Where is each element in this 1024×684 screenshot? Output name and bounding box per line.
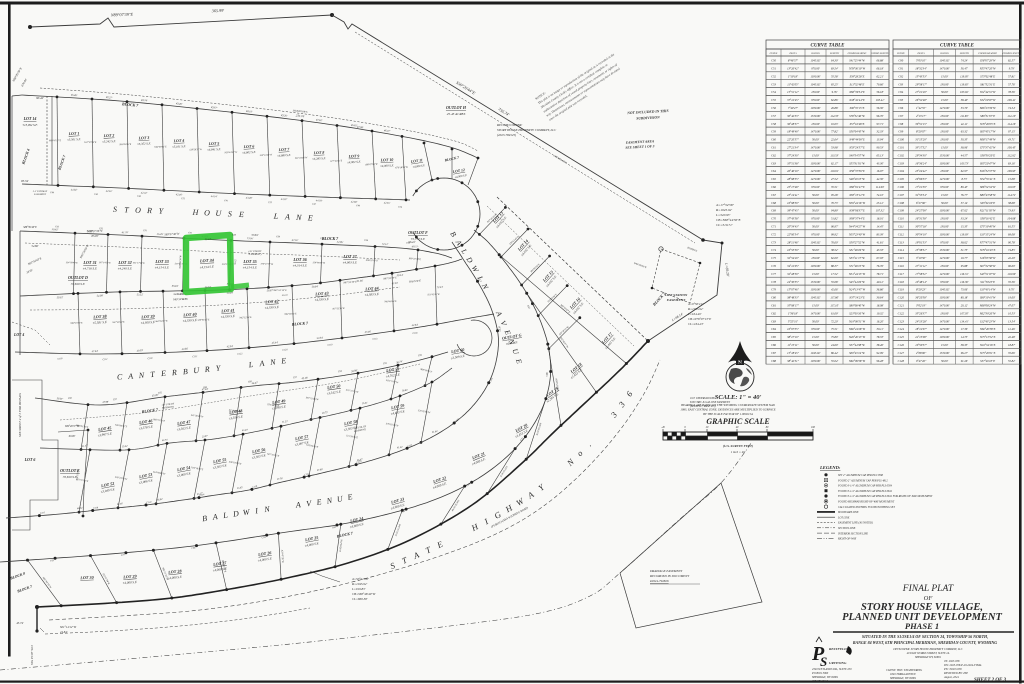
svg-text:LOT 41: LOT 41 [220, 308, 235, 314]
svg-text:83.39': 83.39' [876, 232, 884, 236]
svg-text:URVEYING: URVEYING [829, 661, 847, 665]
svg-text:C124: C124 [898, 327, 905, 331]
svg-text:S48°20'13"W: S48°20'13"W [849, 177, 865, 181]
svg-text:42.84': 42.84' [412, 323, 419, 327]
svg-text:C100: C100 [898, 138, 905, 142]
svg-text:CHORD LENGTH: CHORD LENGTH [871, 52, 889, 55]
svg-text:50.00': 50.00' [812, 319, 820, 323]
svg-text:C91: C91 [188, 232, 192, 234]
svg-text:C50: C50 [771, 59, 776, 63]
svg-text:C107: C107 [898, 193, 905, 197]
svg-text:130.00': 130.00' [940, 225, 949, 229]
svg-text:59.14': 59.14' [397, 274, 404, 277]
svg-text:N75°13'52"E: N75°13'52"E [979, 335, 996, 339]
svg-text:74.54': 74.54' [1008, 106, 1016, 110]
svg-text:C58: C58 [771, 122, 776, 126]
svg-text:14.45': 14.45' [876, 225, 884, 229]
svg-text:63.32': 63.32' [961, 130, 969, 134]
svg-text:N62°52'04"E: N62°52'04"E [238, 316, 252, 319]
svg-text:31°15'29": 31°15'29" [915, 138, 927, 142]
svg-text:1470.00': 1470.00' [939, 272, 949, 276]
svg-text:S32°20'07"W: S32°20'07"W [980, 98, 996, 102]
svg-text:18.01': 18.01' [876, 217, 884, 221]
svg-text:S89°31'07"E: S89°31'07"E [980, 114, 995, 118]
svg-text:1045.92': 1045.92' [939, 288, 949, 292]
svg-text:O: O [135, 206, 141, 215]
svg-text:EASEMENT: EASEMENT [33, 193, 47, 196]
svg-text:C84: C84 [771, 327, 776, 331]
svg-text:42.11': 42.11' [961, 122, 968, 126]
svg-text:15°18'45": 15°18'45" [787, 351, 799, 355]
svg-text:FOUND 3-1/4" ALUMINUM CAP PER: FOUND 3-1/4" ALUMINUM CAP PER PLS 6504 [837, 485, 893, 488]
svg-text:96.97': 96.97' [831, 225, 839, 229]
svg-text:8.73': 8.73' [961, 177, 967, 181]
svg-text:CURVE TABLE: CURVE TABLE [940, 44, 975, 49]
svg-text:C53: C53 [771, 82, 776, 86]
svg-text:CURVE: CURVE [897, 52, 905, 55]
svg-text:C64: C64 [771, 169, 776, 173]
svg-text:C62: C62 [771, 153, 776, 157]
svg-text:85.34': 85.34' [21, 179, 29, 183]
svg-text:37°24'30": 37°24'30" [787, 153, 799, 157]
svg-text:C55: C55 [771, 98, 776, 102]
svg-text:67.03': 67.03' [876, 256, 884, 260]
svg-text:C92: C92 [898, 74, 903, 78]
svg-text:S43°51'07"W: S43°51'07"W [980, 272, 996, 276]
svg-text:28°08'55": 28°08'55" [787, 177, 799, 181]
svg-text:130.00': 130.00' [811, 122, 820, 126]
svg-text:DRAINAGE EASEMENT: DRAINAGE EASEMENT [649, 569, 683, 573]
svg-text:1°42'55": 1°42'55" [916, 106, 927, 110]
svg-text:N47°48'10"E: N47°48'10"E [111, 321, 125, 324]
svg-text:S57°49'23"E: S57°49'23"E [980, 359, 995, 363]
svg-text:S30°03'15"E: S30°03'15"E [198, 318, 211, 321]
svg-text:C61: C61 [771, 146, 776, 150]
svg-text:38.96': 38.96' [961, 146, 969, 150]
svg-text:56.18': 56.18' [876, 90, 884, 94]
svg-text:C91: C91 [143, 230, 147, 232]
svg-text:S45°44'29"W: S45°44'29"W [849, 280, 865, 284]
svg-text:39.11': 39.11' [877, 327, 884, 331]
svg-text:EASEMENT: EASEMENT [666, 298, 686, 302]
svg-text:C94: C94 [898, 90, 903, 94]
svg-text:C117: C117 [898, 272, 905, 276]
svg-text:C120: C120 [898, 296, 905, 300]
svg-text:50.00': 50.00' [941, 90, 949, 94]
svg-text:C54: C54 [771, 90, 776, 94]
svg-text:13.54': 13.54' [1008, 319, 1016, 323]
svg-text:50.00': 50.00' [812, 209, 820, 213]
svg-text:C123: C123 [898, 319, 905, 323]
svg-text:55.82': 55.82' [1008, 359, 1016, 363]
svg-text:C73: C73 [771, 240, 776, 244]
svg-text:17°58'52": 17°58'52" [915, 272, 927, 276]
svg-text:S71°48'15"W: S71°48'15"W [849, 264, 865, 268]
svg-text:SITUATED IN THE S1/2SE1/4 OF S: SITUATED IN THE S1/2SE1/4 OF SECTION 24,… [862, 634, 988, 639]
svg-text:64.30': 64.30' [831, 59, 839, 63]
svg-text:74.10': 74.10' [876, 193, 884, 197]
svg-text:1030.00': 1030.00' [810, 106, 820, 110]
svg-text:E: E [307, 213, 313, 222]
svg-text:S75°37'42"W: S75°37'42"W [980, 146, 996, 150]
svg-text:N08°17'49"W: N08°17'49"W [979, 138, 997, 142]
svg-text:96.70': 96.70' [876, 114, 884, 118]
svg-text:970.00': 970.00' [811, 327, 820, 331]
svg-text:49.39': 49.39' [137, 349, 144, 353]
svg-text:FINAL PLAT: FINAL PLAT [902, 584, 954, 594]
svg-text:LOT 3: LOT 3 [137, 135, 149, 141]
svg-text:(2023-784525): (2023-784525) [497, 133, 516, 137]
svg-text:16°31'58": 16°31'58" [915, 217, 927, 221]
svg-text:1530.00': 1530.00' [810, 280, 820, 284]
svg-text:32°54'20": 32°54'20" [787, 256, 799, 260]
svg-text:95.28': 95.28' [831, 193, 839, 197]
svg-text:74.85': 74.85' [1008, 248, 1016, 252]
svg-text:LOT 7: LOT 7 [277, 146, 290, 152]
svg-text:1030.00': 1030.00' [939, 335, 949, 339]
svg-text:S28°08'32"W: S28°08'32"W [313, 261, 327, 265]
svg-text:N60°39'54"E: N60°39'54"E [848, 90, 865, 94]
svg-text:15.00': 15.00' [941, 74, 949, 78]
svg-text:FOUND 3-1/4" ALUMINUM CAP PER: FOUND 3-1/4" ALUMINUM CAP PER PLS 6812 F… [837, 495, 933, 498]
svg-text:74.24': 74.24' [961, 59, 969, 63]
svg-text:N39°06'37"E: N39°06'37"E [848, 209, 865, 213]
svg-text:2340 WETLANDS DR., SUITE 100: 2340 WETLANDS DR., SUITE 100 [812, 668, 852, 671]
svg-text:C116: C116 [898, 264, 905, 268]
svg-text:66.18': 66.18' [876, 67, 884, 71]
svg-text:S11°52'48"E: S11°52'48"E [850, 82, 865, 86]
svg-text:REVIEWED BY: ZSP: REVIEWED BY: ZSP [943, 672, 968, 675]
svg-text:22°00'54": 22°00'54" [787, 232, 799, 236]
svg-text:RECORDED IN DOCUMENT: RECORDED IN DOCUMENT [649, 574, 689, 578]
svg-text:CHORD BEARING: CHORD BEARING [848, 52, 867, 55]
svg-text:1470.00': 1470.00' [939, 67, 949, 71]
svg-text:970.00': 970.00' [811, 185, 820, 189]
svg-text:20.12': 20.12' [961, 304, 969, 308]
svg-text:C119: C119 [898, 288, 905, 292]
svg-text:LOT 14: LOT 14 [23, 116, 37, 121]
svg-text:C101: C101 [898, 146, 905, 150]
svg-text:25°24'42": 25°24'42" [915, 169, 927, 173]
svg-text:N55°23'40"W: N55°23'40"W [848, 232, 866, 236]
svg-text:LOT 35: LOT 35 [242, 259, 256, 264]
svg-text:96.28': 96.28' [876, 359, 884, 363]
svg-text:53.19': 53.19' [172, 285, 179, 288]
svg-text:LOT 1: LOT 1 [67, 131, 79, 137]
svg-text:19.32': 19.32' [876, 311, 884, 315]
svg-text:A: A [258, 359, 265, 369]
svg-text:CURVE TABLE: CURVE TABLE [811, 44, 846, 49]
svg-text:76.22': 76.22' [234, 258, 238, 265]
svg-text:76.60': 76.60' [831, 240, 839, 244]
svg-text:44.54': 44.54' [211, 195, 218, 198]
svg-text:August, 2024: August, 2024 [943, 676, 959, 679]
svg-text:970.00': 970.00' [940, 240, 949, 244]
svg-text:S81°52'31"E: S81°52'31"E [980, 82, 995, 86]
svg-text:LOT 8: LOT 8 [312, 150, 324, 156]
svg-text:61.66': 61.66' [357, 280, 364, 283]
svg-text:1030.00': 1030.00' [939, 161, 949, 165]
svg-text:42.30': 42.30' [876, 177, 884, 181]
svg-text:S11°50'25"E: S11°50'25"E [980, 280, 995, 284]
svg-text:N24°13'47"W: N24°13'47"W [848, 288, 866, 292]
svg-text:1045.92': 1045.92' [810, 59, 820, 63]
svg-text:53.70': 53.70' [961, 106, 969, 110]
svg-text:15°07'46": 15°07'46" [787, 288, 799, 292]
svg-text:SHERIDAN, WY 82801: SHERIDAN, WY 82801 [890, 677, 917, 680]
svg-text:38.33': 38.33' [961, 343, 969, 347]
svg-text:E: E [238, 210, 244, 219]
svg-text:S: S [113, 205, 117, 214]
svg-text:S09°43'14"W: S09°43'14"W [849, 351, 865, 355]
svg-text:25.12': 25.12' [876, 201, 884, 205]
svg-text:PO BOX 3060: PO BOX 3060 [811, 672, 829, 675]
svg-text:S89°08'40"W: S89°08'40"W [849, 304, 865, 308]
svg-text:LOT 32: LOT 32 [117, 260, 131, 265]
svg-text:70.73': 70.73' [831, 201, 839, 205]
svg-text:100.41': 100.41' [1007, 98, 1016, 102]
svg-text:62.97': 62.97' [961, 169, 969, 173]
svg-text:18°12'07": 18°12'07" [915, 327, 927, 331]
svg-text:57.14': 57.14' [961, 201, 969, 205]
svg-text:BY THE SCALE FACTOR OF 1.00021: BY THE SCALE FACTOR OF 1.000215A [703, 412, 753, 416]
svg-text:N16°34'16"E: N16°34'16"E [979, 343, 996, 347]
svg-text:33°17'52": 33°17'52" [915, 146, 927, 150]
svg-text:C70: C70 [771, 217, 776, 221]
svg-text:27°11'12": 27°11'12" [915, 264, 927, 268]
svg-text:N70°26'05"E: N70°26'05"E [979, 122, 996, 126]
svg-text:RIGHT-OF-WAY: RIGHT-OF-WAY [837, 538, 857, 541]
svg-text:27.54': 27.54' [831, 177, 839, 181]
svg-text:S58°59'20"E: S58°59'20"E [980, 153, 995, 157]
svg-text:130.00': 130.00' [940, 311, 949, 315]
svg-text:C80: C80 [771, 296, 776, 300]
svg-text:51.82': 51.82' [831, 217, 839, 221]
svg-text:16°53'59": 16°53'59" [787, 248, 799, 252]
svg-text:S05°20'47"W: S05°20'47"W [980, 161, 996, 165]
svg-text:130.00': 130.00' [940, 264, 949, 268]
svg-text:S34°59'40"E: S34°59'40"E [66, 261, 78, 264]
svg-text:50.00': 50.00' [812, 225, 820, 229]
svg-text:N80°43'58"W: N80°43'58"W [979, 193, 997, 197]
svg-text:1030.00': 1030.00' [939, 296, 949, 300]
svg-text:9.70': 9.70' [1009, 288, 1015, 292]
svg-text:78.71': 78.71' [876, 272, 884, 276]
svg-text:RESTFELDT: RESTFELDT [829, 647, 850, 651]
svg-text:SHEET 2 OF 3: SHEET 2 OF 3 [974, 678, 1006, 683]
svg-text:103.73': 103.73' [960, 161, 969, 165]
svg-text:15.00': 15.00' [812, 272, 820, 276]
svg-text:C109: C109 [898, 209, 905, 213]
svg-text:30°54'19": 30°54'19" [915, 232, 927, 236]
svg-text:LOT 38: LOT 38 [92, 313, 108, 319]
svg-text:CALCULATED NOTHING FOUND/NOTHI: CALCULATED NOTHING FOUND/NOTHING SET [838, 506, 895, 509]
svg-text:N75°20'01"E: N75°20'01"E [979, 351, 996, 355]
svg-text:1470.00': 1470.00' [939, 327, 949, 331]
svg-text:16°07'35": 16°07'35" [787, 327, 799, 331]
svg-text:1030.00': 1030.00' [810, 359, 820, 363]
svg-text:N26°40'13"W: N26°40'13"W [848, 335, 866, 339]
svg-text:66.88': 66.88' [876, 59, 884, 63]
svg-text:59.62': 59.62' [52, 228, 59, 231]
svg-text:LOT 43: LOT 43 [314, 291, 329, 297]
svg-text:11°15'11": 11°15'11" [787, 343, 799, 347]
svg-text:LOT 31: LOT 31 [82, 260, 96, 265]
svg-text:SECTION LINE: SECTION LINE [838, 527, 856, 530]
svg-text:N64°38'01"E: N64°38'01"E [153, 145, 167, 148]
svg-text:S51°17'04"E: S51°17'04"E [133, 262, 145, 265]
svg-text:1045.92': 1045.92' [939, 59, 949, 63]
svg-text:SHERIDAN WY, 82801: SHERIDAN WY, 82801 [915, 656, 942, 659]
svg-text:100.45': 100.45' [1007, 146, 1016, 150]
svg-text:C91: C91 [320, 238, 324, 240]
svg-text:C111: C111 [898, 225, 904, 229]
svg-text:N82°09'58"W: N82°09'58"W [848, 359, 866, 363]
svg-text:1030.00': 1030.00' [939, 209, 949, 213]
svg-text:18°49'49": 18°49'49" [787, 130, 799, 134]
svg-text:112.92': 112.92' [1007, 153, 1016, 157]
svg-text:42.40': 42.40' [176, 193, 183, 196]
svg-text:113.53': 113.53' [830, 153, 839, 157]
svg-text:S89°46'37"W: S89°46'37"W [65, 425, 80, 428]
svg-text:56.22': 56.22' [205, 238, 212, 241]
svg-text:36.86': 36.86' [876, 288, 884, 292]
svg-text:44.82': 44.82' [71, 188, 78, 191]
svg-text:67.02': 67.02' [961, 209, 969, 213]
svg-text:(U.S. SURVEY FEET): (U.S. SURVEY FEET) [723, 444, 753, 448]
svg-text:2°08'00": 2°08'00" [916, 351, 927, 355]
svg-text:S56°04'45"W: S56°04'45"W [849, 130, 865, 134]
svg-text:N78°36'19"W: N78°36'19"W [848, 67, 866, 71]
svg-text:47.07': 47.07' [1008, 304, 1016, 308]
svg-text:17°21'39": 17°21'39" [915, 185, 927, 189]
svg-text:C86: C86 [771, 343, 776, 347]
svg-text:LOT 29: LOT 29 [122, 573, 138, 579]
svg-text:C41: C41 [224, 199, 228, 202]
svg-text:57.76': 57.76' [1008, 82, 1016, 86]
svg-text:C110: C110 [898, 217, 905, 221]
svg-text:39.64': 39.64' [876, 296, 884, 300]
svg-text:79.66': 79.66' [876, 82, 884, 86]
svg-text:24.69': 24.69' [831, 343, 839, 347]
svg-text:23°14'41": 23°14'41" [787, 193, 799, 197]
svg-text:S16°05'58"W: S16°05'58"W [980, 256, 996, 260]
svg-text:62.17': 62.17' [831, 161, 839, 165]
svg-text:SET 2" ALUMINUM CAP PER PLS 53: SET 2" ALUMINUM CAP PER PLS 5368 [838, 474, 884, 477]
svg-text:S04°01'05"E: S04°01'05"E [119, 143, 131, 146]
svg-text:130.00': 130.00' [940, 130, 949, 134]
svg-text:10.53': 10.53' [1008, 311, 1016, 315]
svg-text:53.52': 53.52' [137, 293, 144, 296]
svg-text:110.05': 110.05' [1007, 185, 1016, 189]
svg-text:38°27'19": 38°27'19" [787, 335, 799, 339]
svg-text:38.02': 38.02' [961, 240, 969, 244]
svg-text:45.74': 45.74' [16, 621, 24, 625]
svg-text:22°20'57": 22°20'57" [787, 138, 799, 142]
svg-text:42.68': 42.68' [351, 201, 358, 204]
svg-text:S59°27'52"W: S59°27'52"W [849, 240, 865, 244]
svg-text:R=1045.92': R=1045.92' [351, 582, 367, 586]
svg-text:CB=N76°07'13"E: CB=N76°07'13"E [688, 317, 711, 321]
svg-text:55.58': 55.58' [831, 74, 839, 78]
svg-text:15.00': 15.00' [941, 193, 949, 197]
svg-text:C83: C83 [771, 319, 776, 323]
svg-text:58.64': 58.64' [312, 285, 319, 288]
svg-text:75.89': 75.89' [831, 335, 839, 339]
svg-text:91.03': 91.03' [831, 122, 839, 126]
svg-text:C98: C98 [898, 122, 903, 126]
svg-text:LOT LINE: LOT LINE [837, 516, 850, 519]
svg-text:44.59': 44.59' [316, 199, 323, 202]
svg-text:38°42'51": 38°42'51" [787, 359, 799, 363]
svg-text:8°46'57": 8°46'57" [788, 59, 799, 63]
svg-text:83.16': 83.16' [1008, 161, 1016, 165]
svg-text:11°42'05": 11°42'05" [787, 82, 799, 86]
svg-text:RECORD OWNER:: RECORD OWNER: [496, 123, 522, 127]
svg-text:94.89': 94.89' [831, 209, 839, 213]
svg-text:S03°02'20"E: S03°02'20"E [980, 201, 995, 205]
svg-text:3°19'50": 3°19'50" [916, 256, 927, 260]
svg-text:C63: C63 [771, 161, 776, 165]
svg-text:130.00': 130.00' [940, 114, 949, 118]
svg-text:Δ=50°22'26": Δ=50°22'26" [351, 577, 370, 581]
svg-text:N55°47'20"W: N55°47'20"W [979, 67, 997, 71]
svg-text:77.82': 77.82' [831, 130, 839, 134]
svg-text:104.08': 104.08' [1007, 217, 1016, 221]
svg-text:N19°09'51"W: N19°09'51"W [848, 319, 866, 323]
svg-text:N87°53'19"E: N87°53'19"E [272, 289, 287, 292]
svg-text:42.94': 42.94' [227, 345, 234, 349]
svg-text:26°46'10": 26°46'10" [787, 169, 799, 173]
svg-text:111.83': 111.83' [960, 114, 969, 118]
svg-text:N16°32'37"W: N16°32'37"W [979, 169, 997, 173]
svg-text:9.79': 9.79' [1009, 67, 1015, 71]
svg-text:LOT 33: LOT 33 [154, 259, 168, 264]
svg-text:40.12': 40.12' [876, 280, 884, 284]
svg-text:15°51'12": 15°51'12" [787, 90, 799, 94]
svg-text:N18°41'44"E: N18°41'44"E [848, 98, 865, 102]
svg-text:FOUND HIGHWAY RIGHT-OF-WAY MON: FOUND HIGHWAY RIGHT-OF-WAY MONUMENT [837, 501, 895, 504]
svg-text:42.32': 42.32' [141, 192, 148, 195]
svg-text:24°27'09": 24°27'09" [915, 209, 927, 213]
svg-text:N51°44'15"W: N51°44'15"W [848, 272, 866, 276]
svg-text:N52°55'41"E: N52°55'41"E [979, 177, 996, 181]
svg-text:R=1045.92': R=1045.92' [715, 208, 732, 212]
svg-text:S19°13'48"W: S19°13'48"W [260, 153, 274, 156]
svg-text:57.81': 57.81' [1008, 74, 1016, 78]
svg-text:25°17'48": 25°17'48" [787, 185, 799, 189]
svg-text:1030.00': 1030.00' [939, 232, 949, 236]
svg-text:S28°28'37"W: S28°28'37"W [189, 148, 202, 151]
svg-text:50.00': 50.00' [812, 138, 820, 142]
svg-text:LOT 30: LOT 30 [79, 575, 94, 581]
svg-text:N20°44'27"W: N20°44'27"W [223, 151, 238, 154]
svg-text:30°57'18": 30°57'18" [915, 225, 927, 229]
svg-text:S55°31'01"W: S55°31'01"W [849, 161, 865, 165]
svg-text:C65: C65 [771, 177, 776, 181]
svg-text:99.53': 99.53' [876, 146, 884, 150]
svg-text:16.20': 16.20' [876, 319, 884, 323]
svg-text:18°32'34": 18°32'34" [915, 67, 927, 71]
svg-text:N53°24'57"E: N53°24'57"E [848, 146, 865, 150]
svg-text:OF: OF [924, 595, 934, 602]
svg-text:C97: C97 [898, 114, 903, 118]
svg-text:1530.00': 1530.00' [939, 351, 949, 355]
svg-text:S62°01'07"W: S62°01'07"W [155, 320, 169, 323]
svg-text:26.88': 26.88' [831, 106, 839, 110]
svg-text:970.00': 970.00' [940, 280, 949, 284]
svg-text:C72: C72 [771, 232, 776, 236]
